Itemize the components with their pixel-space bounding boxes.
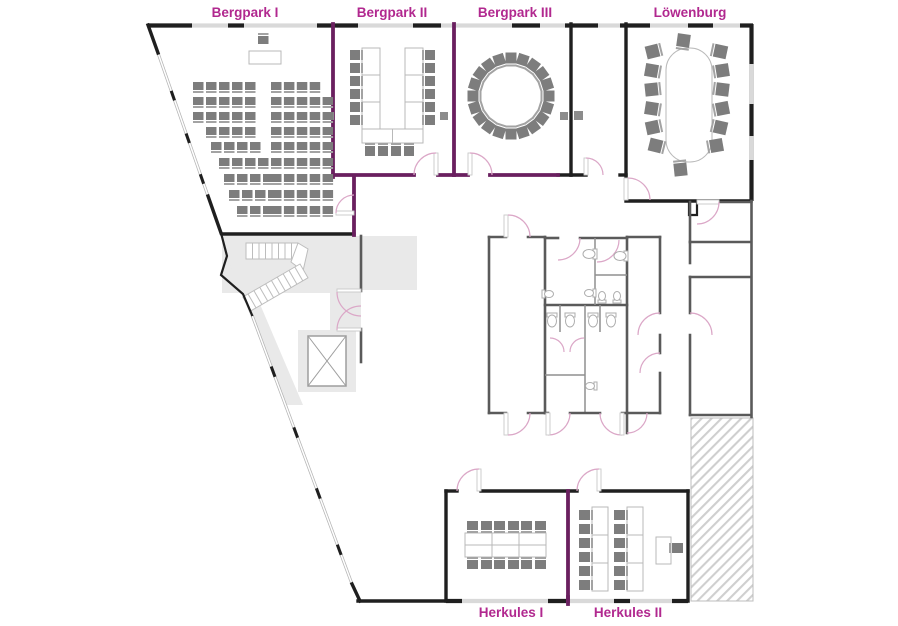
room-bergpark-iii	[457, 28, 569, 173]
label-bergpark-i: Bergpark I	[212, 5, 279, 20]
room-loewenburg	[628, 28, 749, 199]
label-bergpark-iii: Bergpark III	[478, 5, 552, 20]
room-bergpark-i	[170, 28, 330, 228]
room-bergpark-ii	[336, 28, 452, 173]
floor-plan: Bergpark I Bergpark II Bergpark III Löwe…	[0, 0, 898, 626]
screen-icon	[574, 111, 583, 120]
label-herkules-ii: Herkules II	[594, 605, 662, 620]
elevator-icon	[308, 336, 346, 386]
room-herkules-ii	[570, 493, 686, 599]
label-herkules-i: Herkules I	[479, 605, 544, 620]
floor-plan-page: Bergpark I Bergpark II Bergpark III Löwe…	[0, 0, 898, 626]
terrace-hatch	[691, 418, 753, 601]
label-bergpark-ii: Bergpark II	[357, 5, 428, 20]
label-loewenburg: Löwenburg	[654, 5, 727, 20]
room-herkules-i	[448, 493, 566, 599]
doors	[336, 153, 719, 491]
